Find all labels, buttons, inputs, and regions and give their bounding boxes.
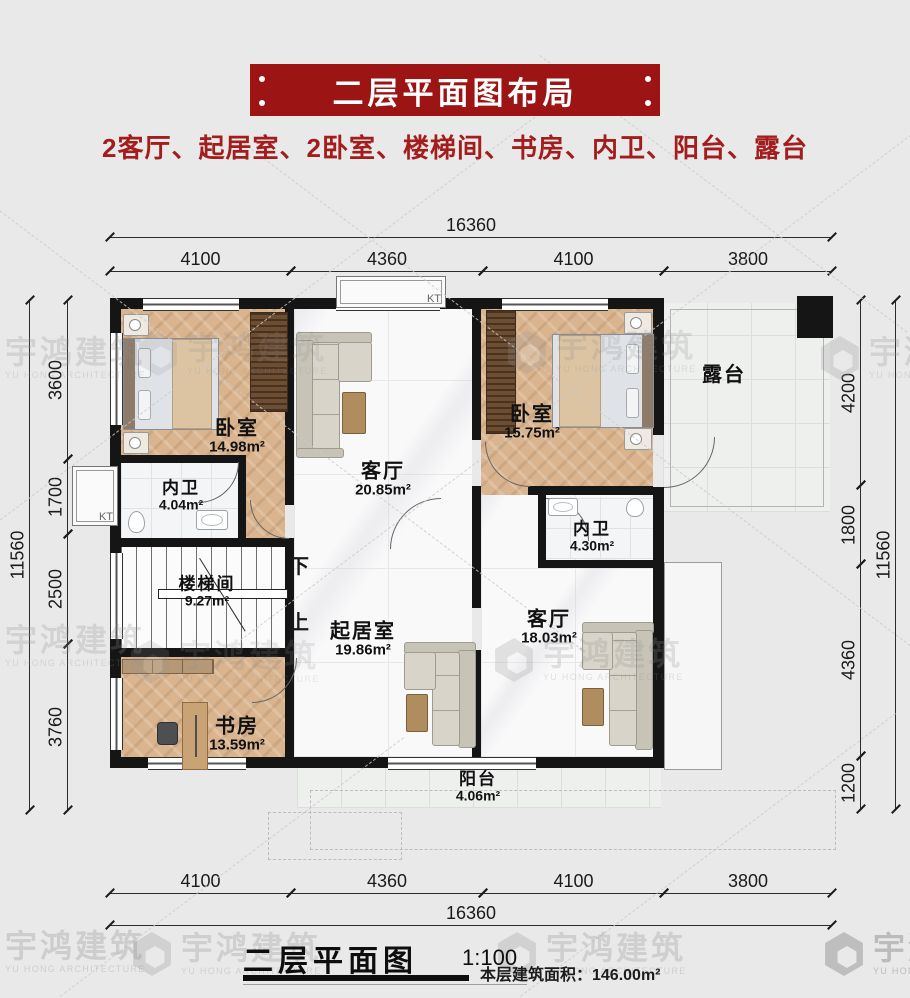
page-title: 二层平面图布局 — [333, 68, 578, 113]
dim-right-total: 11560 — [873, 300, 896, 809]
sofa-seat — [609, 632, 637, 746]
window — [502, 298, 608, 311]
nightstand — [123, 314, 149, 336]
floor-area-note: 本层建筑面积：146.00m² — [480, 961, 661, 985]
dim-bottom-total: 16360 — [110, 902, 832, 926]
sink — [548, 498, 578, 516]
stair-down-label: 下 — [289, 550, 309, 579]
wall-segment — [653, 487, 664, 768]
dim-right-seg-1: 4200 — [838, 300, 861, 485]
dim-left-seg-3: 2500 — [45, 534, 68, 644]
room-label-living2: 客厅 18.03m² — [521, 608, 577, 647]
pillow — [138, 348, 151, 378]
dim-bottom-seg-2: 4360 — [291, 870, 483, 894]
dim-top-total: 16360 — [110, 214, 832, 238]
bed-headboard — [124, 339, 135, 429]
nightstand — [123, 432, 149, 454]
pillow — [626, 388, 639, 418]
banner-dot — [259, 76, 265, 82]
pillow — [138, 390, 151, 420]
wall-segment — [528, 486, 653, 495]
bed-headboard — [642, 335, 653, 427]
room-label-bath2: 内卫 4.30m² — [570, 520, 614, 555]
stair-up-label: 上 — [289, 606, 309, 635]
toilet — [128, 511, 145, 533]
coffee-table — [406, 694, 428, 732]
window — [143, 298, 239, 311]
watermark: 宇鸿建筑YU HONG ARCHITECTURE — [818, 336, 910, 380]
banner-dot — [259, 100, 265, 106]
terrace-column — [797, 296, 833, 338]
wall-segment — [653, 298, 664, 435]
dim-bottom-seg-3: 4100 — [483, 870, 664, 894]
room-label-living1: 客厅 20.85m² — [355, 460, 411, 499]
office-chair — [157, 722, 178, 745]
floor-plan-page: 二层平面图布局 2客厅、起居室、2卧室、楼梯间、书房、内卫、阳台、露台 1636… — [0, 0, 910, 998]
wall-segment — [472, 309, 481, 440]
wall-segment — [538, 495, 546, 568]
toilet — [626, 498, 644, 517]
nightstand — [624, 312, 652, 334]
yuhong-logo-icon — [822, 932, 866, 976]
cabinet — [122, 659, 214, 674]
room-label-terrace: 露台 — [702, 364, 746, 386]
window — [110, 333, 123, 425]
sofa-chaise — [404, 652, 436, 690]
room-list-subtitle: 2客厅、起居室、2卧室、楼梯间、书房、内卫、阳台、露台 — [0, 128, 910, 165]
sofa-back — [635, 630, 653, 750]
dim-top-seg-3: 4100 — [483, 248, 664, 272]
room-label-bedroom2: 卧室 15.75m² — [504, 403, 560, 442]
wall-segment — [538, 560, 653, 568]
drawing-title: 二层平面图 — [243, 936, 418, 980]
room-label-study: 书房 13.59m² — [209, 715, 265, 754]
watermark: 宇鸿建筑YU HONG ARCHITECTURE — [822, 932, 910, 976]
dim-left-seg-4: 3760 — [45, 644, 68, 810]
sofa-seat — [312, 342, 340, 450]
dim-left-total: 11560 — [7, 300, 30, 810]
room-label-bedroom1: 卧室 14.98m² — [209, 417, 265, 456]
dim-left-seg-1: 3600 — [45, 300, 68, 459]
wall-segment — [238, 455, 246, 543]
coffee-table — [342, 392, 366, 434]
wall-segment — [110, 648, 294, 657]
sofa-chaise — [582, 632, 613, 670]
blanket — [559, 335, 601, 427]
room-label-bath1: 内卫 4.04m² — [159, 479, 203, 514]
watermark: 宇鸿建筑YU HONG ARCHITECTURE — [0, 930, 146, 974]
dim-bottom-seg-4: 3800 — [664, 870, 832, 894]
dim-right-seg-4: 1200 — [838, 756, 861, 809]
wall-segment — [110, 538, 294, 547]
room-label-balcony: 阳台 4.06m² — [456, 770, 500, 805]
title-banner: 二层平面图布局 — [250, 64, 660, 116]
room-label-stairwell: 楼梯间 9.27m² — [179, 575, 236, 610]
wall-segment — [472, 486, 481, 608]
kt-unit-left: KT — [72, 466, 118, 526]
eave-outline — [268, 812, 402, 860]
banner-dot — [645, 100, 651, 106]
banner-dot — [645, 76, 651, 82]
window — [110, 553, 123, 639]
coffee-table — [582, 688, 604, 726]
dim-top-seg-4: 3800 — [664, 248, 832, 272]
kt-unit-top: KT — [336, 276, 446, 308]
room-label-family: 起居室 19.86m² — [330, 620, 396, 659]
dim-top-seg-1: 4100 — [110, 248, 291, 272]
bay-ledge — [664, 562, 722, 770]
sofa-back — [458, 650, 476, 748]
dim-right-seg-2: 1800 — [838, 485, 861, 564]
sofa-chaise — [338, 342, 372, 382]
desk — [182, 702, 208, 770]
title-underline — [243, 975, 469, 981]
sofa-seat — [432, 652, 460, 746]
balcony-slider-door — [388, 757, 536, 770]
window — [110, 678, 123, 750]
